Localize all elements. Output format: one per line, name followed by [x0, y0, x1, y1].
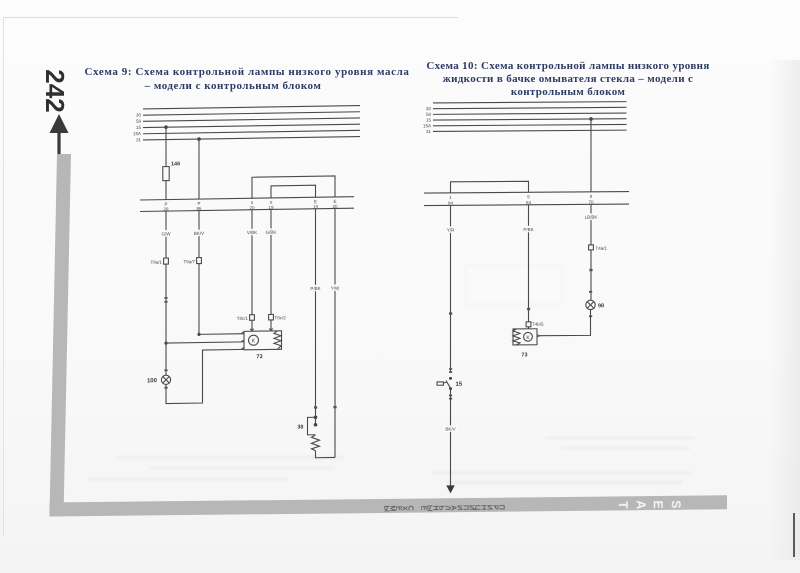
svg-text:15: 15 [456, 382, 463, 388]
svg-text:38: 38 [297, 424, 303, 430]
svg-text:K: K [252, 338, 256, 344]
svg-text:84: 84 [448, 201, 454, 206]
svg-text:73: 73 [521, 352, 527, 358]
svg-text:73: 73 [256, 354, 262, 360]
svg-text:P/BK: P/BK [310, 286, 320, 291]
svg-text:15A: 15A [133, 131, 141, 136]
svg-text:70: 70 [588, 200, 594, 205]
svg-text:30: 30 [136, 112, 142, 117]
svg-text:84: 84 [526, 200, 532, 205]
svg-text:T8a/1: T8a/1 [150, 260, 162, 265]
svg-text:T8a/7: T8a/7 [183, 259, 195, 264]
svg-text:20: 20 [332, 204, 338, 209]
svg-text:31: 31 [426, 129, 432, 134]
svg-text:58: 58 [136, 119, 142, 124]
svg-text:20: 20 [249, 205, 255, 210]
svg-text:G/BK: G/BK [266, 230, 277, 235]
svg-text:1: 1 [449, 195, 452, 200]
svg-text:V/BK: V/BK [247, 230, 257, 235]
svg-text:LB/BK: LB/BK [585, 215, 598, 220]
svg-text:Y/W: Y/W [331, 286, 340, 291]
svg-text:58: 58 [426, 112, 432, 117]
svg-text:19: 19 [313, 204, 319, 209]
svg-text:5: 5 [527, 194, 530, 199]
svg-text:100: 100 [147, 378, 158, 384]
svg-text:146: 146 [171, 161, 180, 167]
svg-text:15A: 15A [423, 123, 431, 128]
svg-text:T4b/5: T4b/5 [532, 322, 544, 327]
svg-text:G/W: G/W [162, 231, 172, 236]
svg-text:15: 15 [426, 118, 432, 123]
svg-text:31: 31 [136, 137, 142, 142]
svg-text:P/BK: P/BK [523, 227, 533, 232]
svg-text:BK/V: BK/V [194, 231, 204, 236]
svg-text:19: 19 [268, 205, 274, 210]
svg-text:Y/R: Y/R [447, 228, 455, 233]
svg-text:BK/V: BK/V [445, 427, 455, 432]
svg-text:86: 86 [196, 206, 202, 211]
svg-text:8: 8 [590, 194, 593, 199]
svg-text:98: 98 [598, 303, 604, 309]
svg-text:T8c/2: T8c/2 [275, 315, 287, 320]
svg-text:28: 28 [163, 207, 169, 212]
svg-text:15: 15 [136, 125, 142, 130]
svg-text:30: 30 [426, 106, 432, 111]
svg-text:T8c/1: T8c/1 [237, 316, 249, 321]
svg-text:T4a/1: T4a/1 [596, 246, 608, 251]
